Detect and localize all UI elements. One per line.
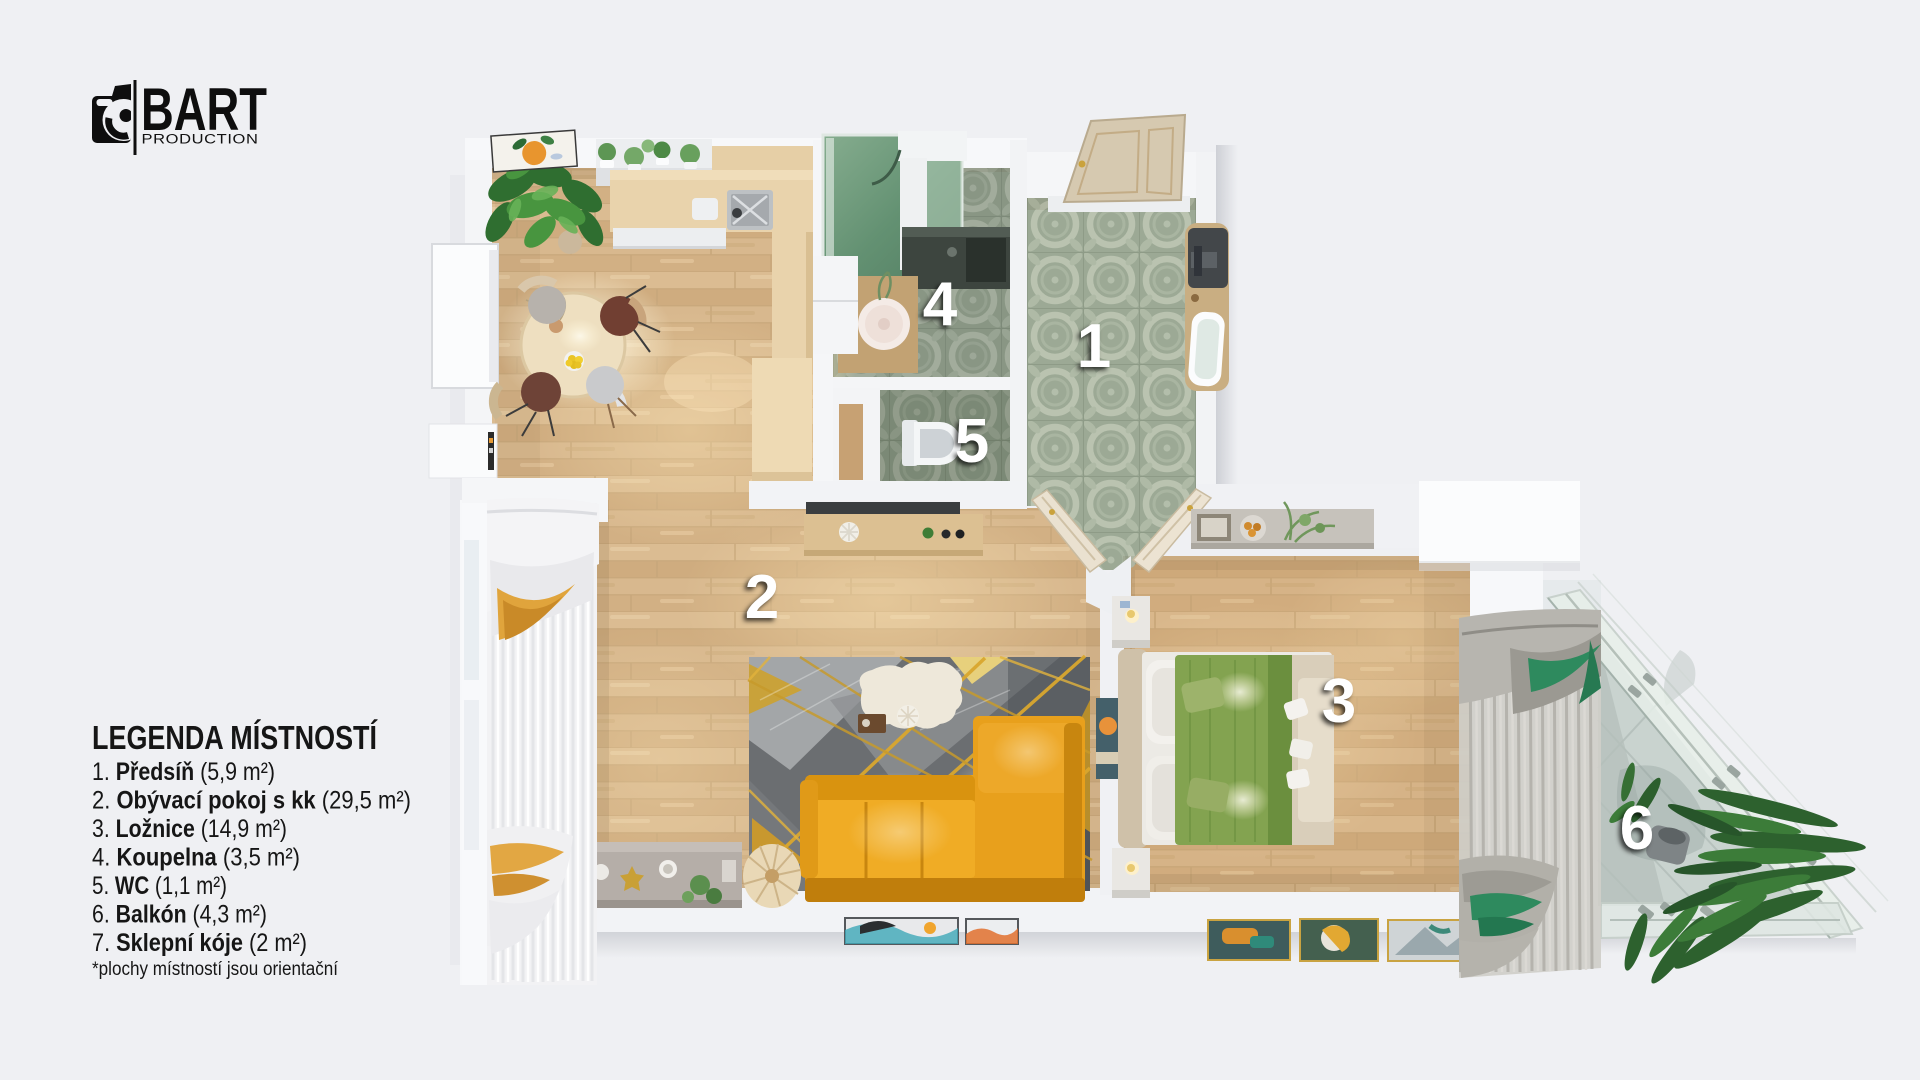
svg-text:7. Sklepní kóje (2 m²): 7. Sklepní kóje (2 m²)	[92, 929, 307, 957]
svg-text:2: 2	[745, 563, 779, 632]
svg-text:2. Obývací pokoj s kk (29,5 m: 2. Obývací pokoj s kk (29,5 m²)	[92, 787, 411, 815]
svg-text:4. Koupelna (3,5 m²): 4. Koupelna (3,5 m²)	[92, 844, 300, 872]
svg-text:4: 4	[923, 270, 958, 339]
svg-text:*plochy místností jsou orienta: *plochy místností jsou orientační	[92, 959, 339, 980]
svg-text:1. Předsíň (5,9 m²): 1. Předsíň (5,9 m²)	[92, 758, 275, 786]
svg-text:6: 6	[1620, 794, 1654, 863]
svg-text:PRODUCTION: PRODUCTION	[142, 132, 259, 147]
svg-text:LEGENDA MÍSTNOSTÍ: LEGENDA MÍSTNOSTÍ	[92, 719, 378, 756]
svg-text:3: 3	[1322, 667, 1356, 736]
svg-text:5. WC (1,1 m²): 5. WC (1,1 m²)	[92, 872, 227, 900]
svg-text:5: 5	[955, 407, 989, 476]
svg-text:1: 1	[1077, 312, 1111, 381]
svg-text:3. Ložnice (14,9 m²): 3. Ložnice (14,9 m²)	[92, 815, 287, 843]
svg-text:6. Balkón (4,3 m²): 6. Balkón (4,3 m²)	[92, 901, 267, 929]
